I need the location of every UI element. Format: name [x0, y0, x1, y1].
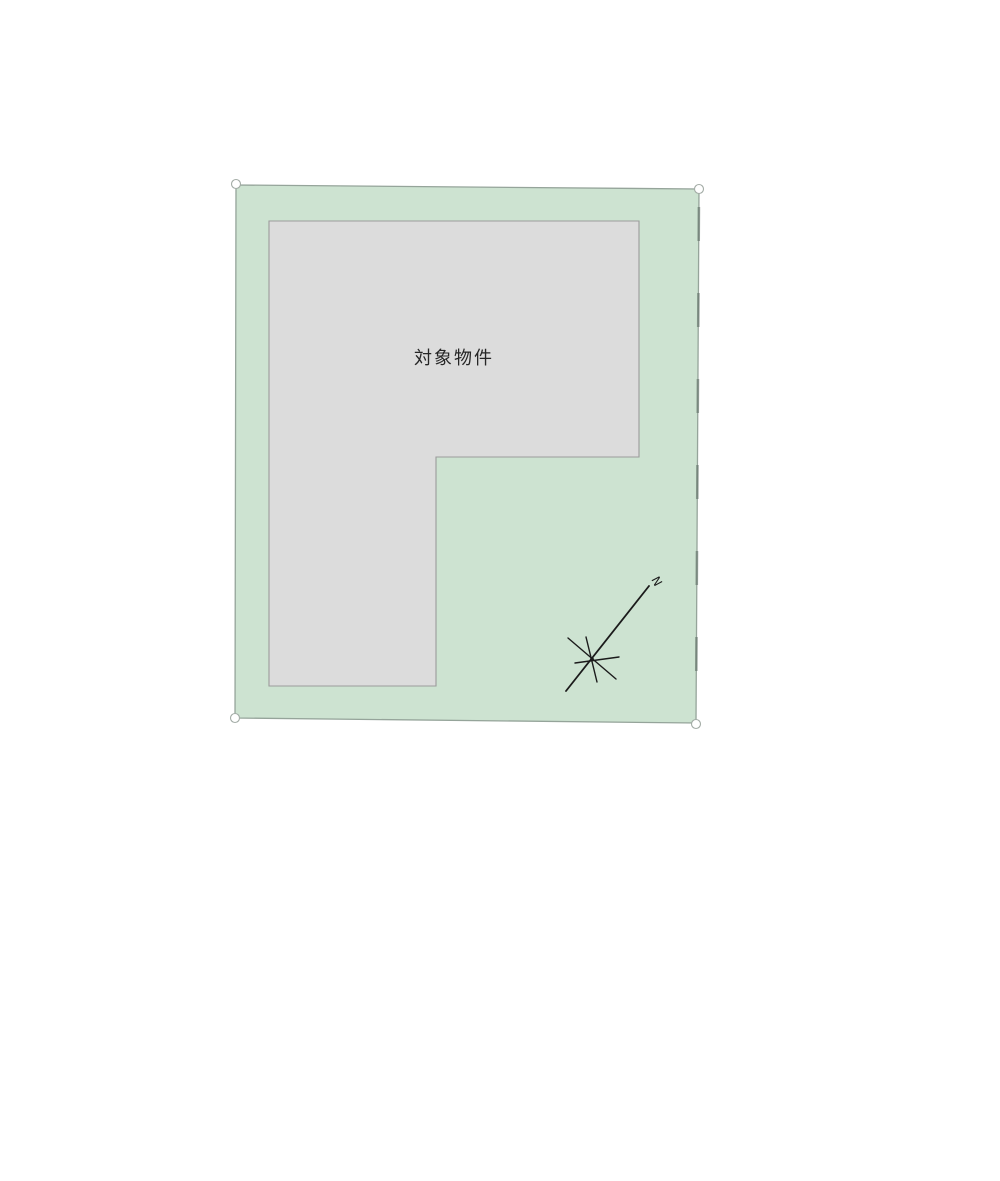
site-plan-page: 対象物件 N	[0, 0, 1000, 1181]
compass-hub	[590, 657, 594, 661]
corner-handle-bottom-left[interactable]	[231, 714, 240, 723]
building-label: 対象物件	[414, 348, 494, 369]
corner-handle-top-right[interactable]	[695, 185, 704, 194]
site-plan-drawing: 対象物件 N	[0, 0, 1000, 1181]
corner-handle-top-left[interactable]	[232, 180, 241, 189]
corner-handle-bottom-right[interactable]	[692, 720, 701, 729]
